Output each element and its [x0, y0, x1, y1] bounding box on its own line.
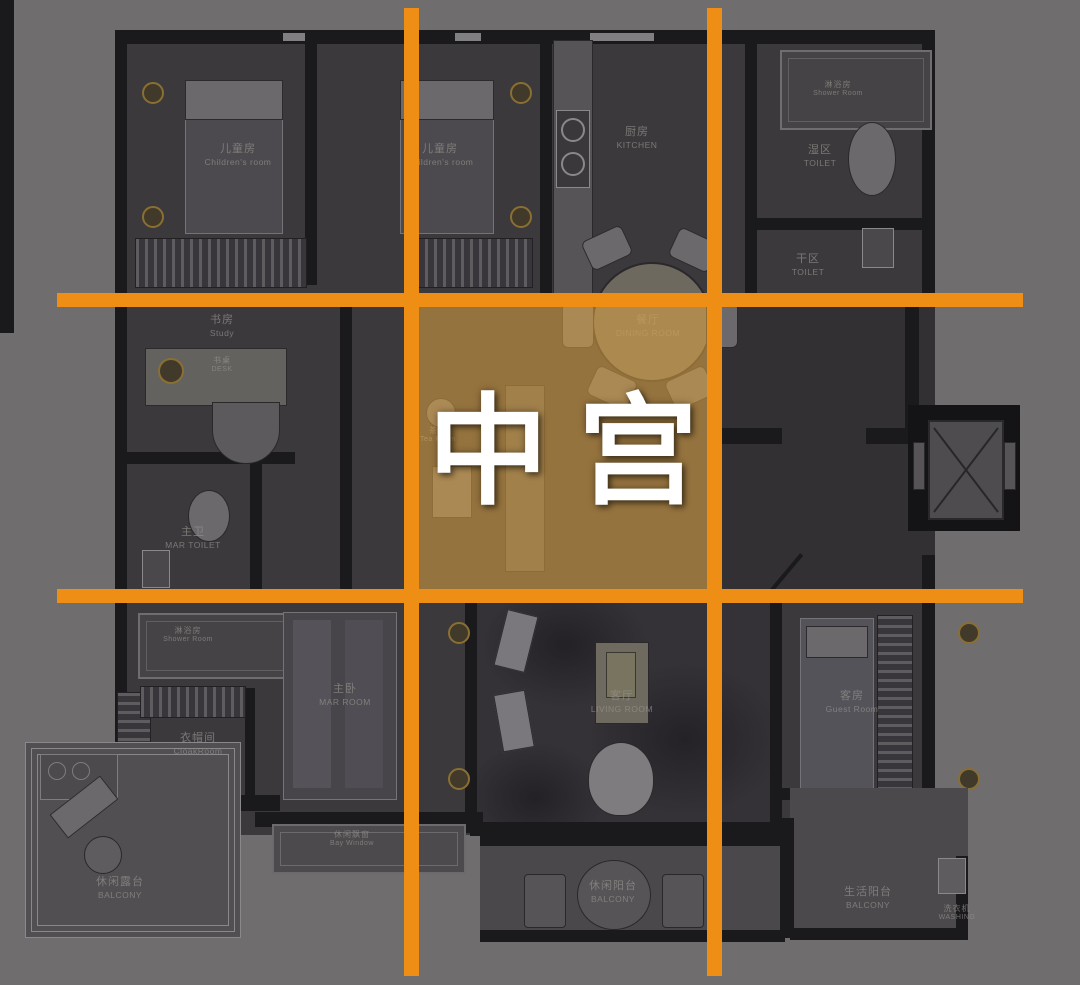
room-label: 客厅LIVING ROOM: [591, 690, 653, 714]
center-palace-label: 中宫: [428, 392, 728, 512]
room-label: 儿童房Children's room: [205, 143, 272, 167]
room-label: 湿区TOILET: [804, 144, 837, 168]
room-label: 书桌DESK: [211, 356, 232, 375]
screenshot-stage: 儿童房Children's room儿童房Children's room厨房KI…: [0, 0, 1080, 985]
room-label: 衣帽间CloakRoom: [174, 732, 223, 756]
room-label: 客房Guest Room: [826, 690, 879, 714]
room-label: 休闲阳台BALCONY: [589, 880, 637, 904]
room-label: 主卧MAR ROOM: [319, 683, 371, 707]
room-label: 书房Study: [210, 314, 234, 338]
room-label: 厨房KITCHEN: [617, 126, 658, 150]
room-label: 洗衣机WASHING: [939, 904, 976, 923]
grid-line-vertical-left: [404, 8, 419, 976]
room-label: 干区TOILET: [792, 253, 825, 277]
room-label: 生活阳台BALCONY: [844, 886, 892, 910]
room-label: 休闲飘窗Bay Window: [330, 830, 374, 849]
room-label: 主卫MAR TOILET: [165, 526, 221, 550]
grid-line-horizontal-top: [57, 293, 1023, 307]
grid-line-horizontal-bottom: [57, 589, 1023, 603]
room-label: 淋浴房Shower Room: [813, 80, 863, 99]
room-label: 休闲露台BALCONY: [96, 876, 144, 900]
room-label: 淋浴房Shower Room: [163, 626, 213, 645]
